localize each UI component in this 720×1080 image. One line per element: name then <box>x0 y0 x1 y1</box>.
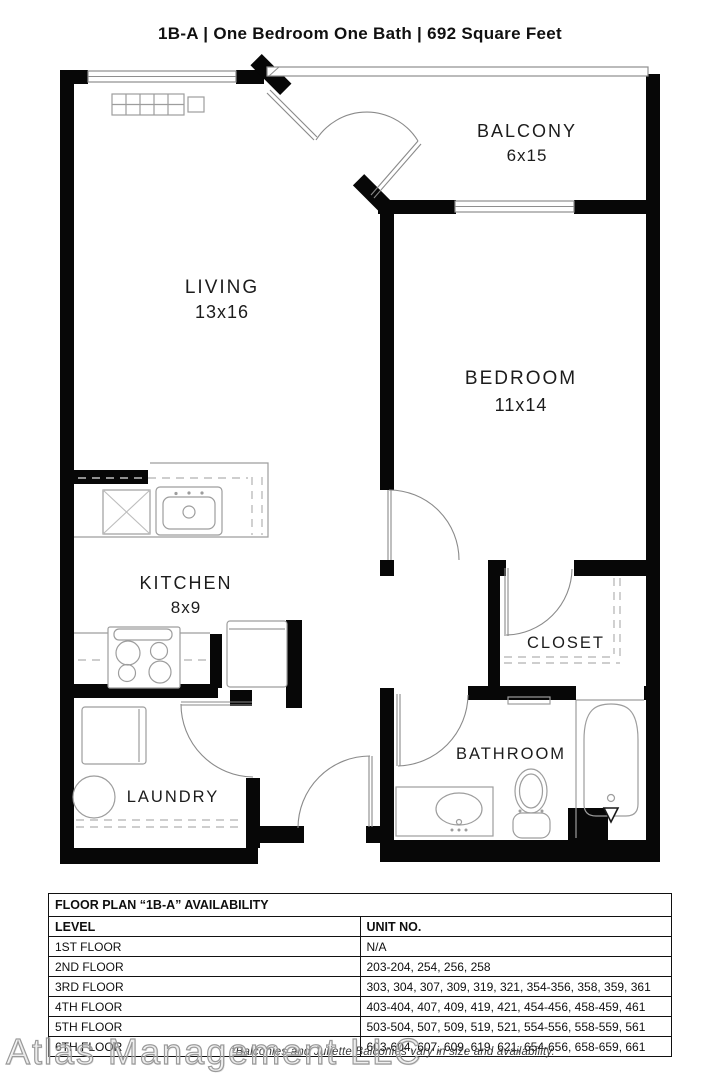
table-row: 3RD FLOOR 303, 304, 307, 309, 319, 321, … <box>49 977 672 997</box>
room-label-closet: CLOSET <box>527 634 605 652</box>
laundry-shelf-dashes <box>76 820 244 827</box>
room-label-laundry: LAUNDRY <box>127 788 220 806</box>
level-cell: 2ND FLOOR <box>49 957 361 977</box>
room-label-balcony: BALCONY <box>477 121 577 141</box>
stove <box>74 627 210 688</box>
level-cell: 1ST FLOOR <box>49 937 361 957</box>
toilet <box>513 769 550 838</box>
level-cell: 4TH FLOOR <box>49 997 361 1017</box>
room-dims-balcony: 6x15 <box>507 146 548 165</box>
laundry-door-swing <box>181 702 253 777</box>
room-dims-bedroom: 11x14 <box>495 395 548 415</box>
units-cell: N/A <box>360 937 672 957</box>
floor-plan-page: 1B-A | One Bedroom One Bath | 692 Square… <box>0 0 720 1080</box>
room-dims-kitchen: 8x9 <box>171 598 201 617</box>
availability-title: FLOOR PLAN “1B-A” AVAILABILITY <box>49 894 672 917</box>
room-label-living: LIVING <box>185 277 259 298</box>
column-header-level: LEVEL <box>49 917 361 937</box>
vanity-sink <box>396 787 493 836</box>
room-label-bedroom: BEDROOM <box>465 368 577 389</box>
refrigerator <box>227 621 287 687</box>
units-cell: 303, 304, 307, 309, 319, 321, 354-356, 3… <box>360 977 672 997</box>
closet-door-swing <box>505 568 572 636</box>
table-row: 1ST FLOOR N/A <box>49 937 672 957</box>
floor-plan-drawing: BALCONY 6x15 LIVING 13x16 BEDROOM 11x14 … <box>0 0 720 885</box>
washer <box>82 707 146 764</box>
balcony-railing <box>267 67 648 76</box>
units-cell: 203-204, 254, 256, 258 <box>360 957 672 977</box>
availability-title-row: FLOOR PLAN “1B-A” AVAILABILITY <box>49 894 672 917</box>
table-row: 4TH FLOOR 403-404, 407, 409, 419, 421, 4… <box>49 997 672 1017</box>
water-heater <box>73 776 115 818</box>
room-label-kitchen: KITCHEN <box>139 573 232 593</box>
column-header-unit-no: UNIT NO. <box>360 917 672 937</box>
watermark: Atlas Management LLC <box>6 1031 422 1073</box>
walls <box>60 54 660 864</box>
balcony-french-doors <box>267 90 421 198</box>
units-cell: 403-404, 407, 409, 419, 421, 454-456, 45… <box>360 997 672 1017</box>
table-row: 2ND FLOOR 203-204, 254, 256, 258 <box>49 957 672 977</box>
room-label-bathroom: BATHROOM <box>456 745 566 763</box>
room-dims-living: 13x16 <box>195 302 249 322</box>
entry-door-swing <box>298 756 372 828</box>
hvac-unit <box>112 94 204 115</box>
dishwasher <box>103 490 150 534</box>
bedroom-window <box>455 201 574 212</box>
availability-header-row: LEVEL UNIT NO. <box>49 917 672 937</box>
kitchen-sink <box>156 487 222 535</box>
level-cell: 3RD FLOOR <box>49 977 361 997</box>
living-window <box>88 71 236 82</box>
bedroom-door-swing <box>388 490 459 560</box>
